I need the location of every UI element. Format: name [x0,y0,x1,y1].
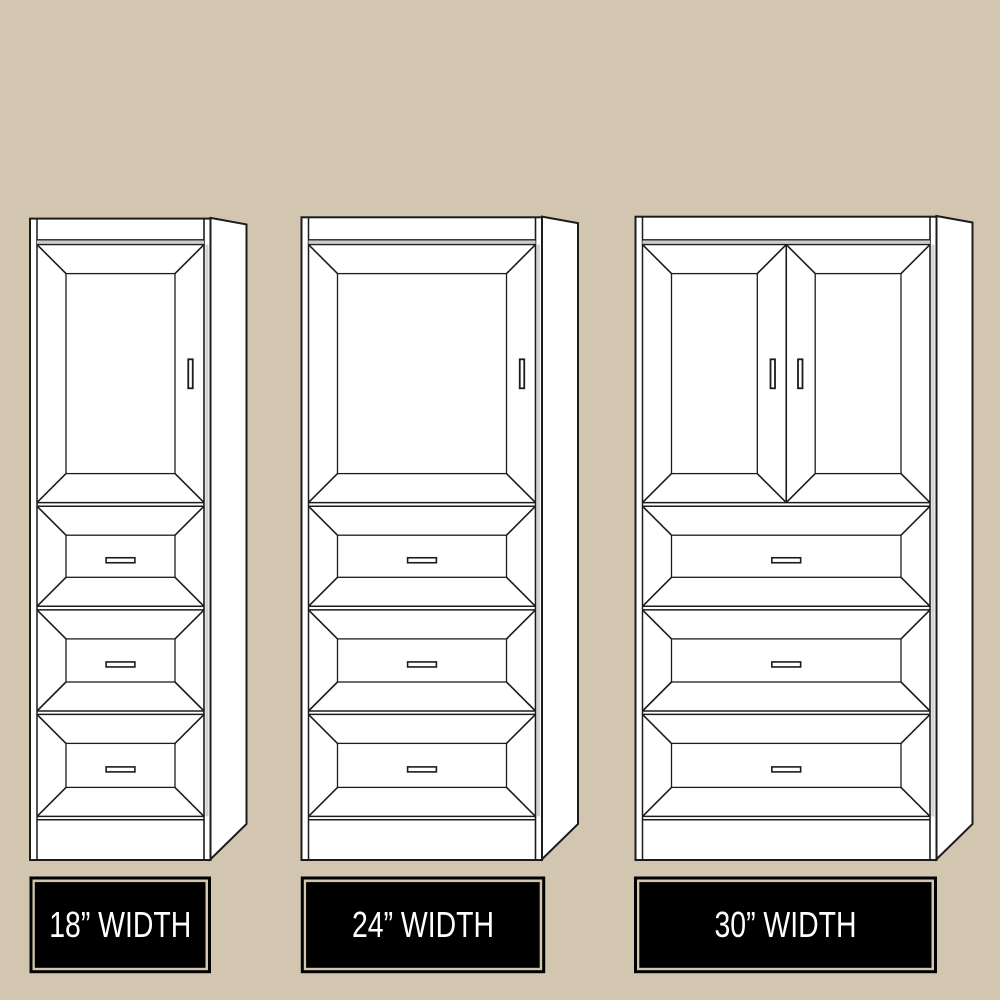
svg-text:30” WIDTH: 30” WIDTH [715,904,857,945]
svg-text:18” WIDTH: 18” WIDTH [49,904,191,945]
svg-text:24” WIDTH: 24” WIDTH [352,904,494,945]
